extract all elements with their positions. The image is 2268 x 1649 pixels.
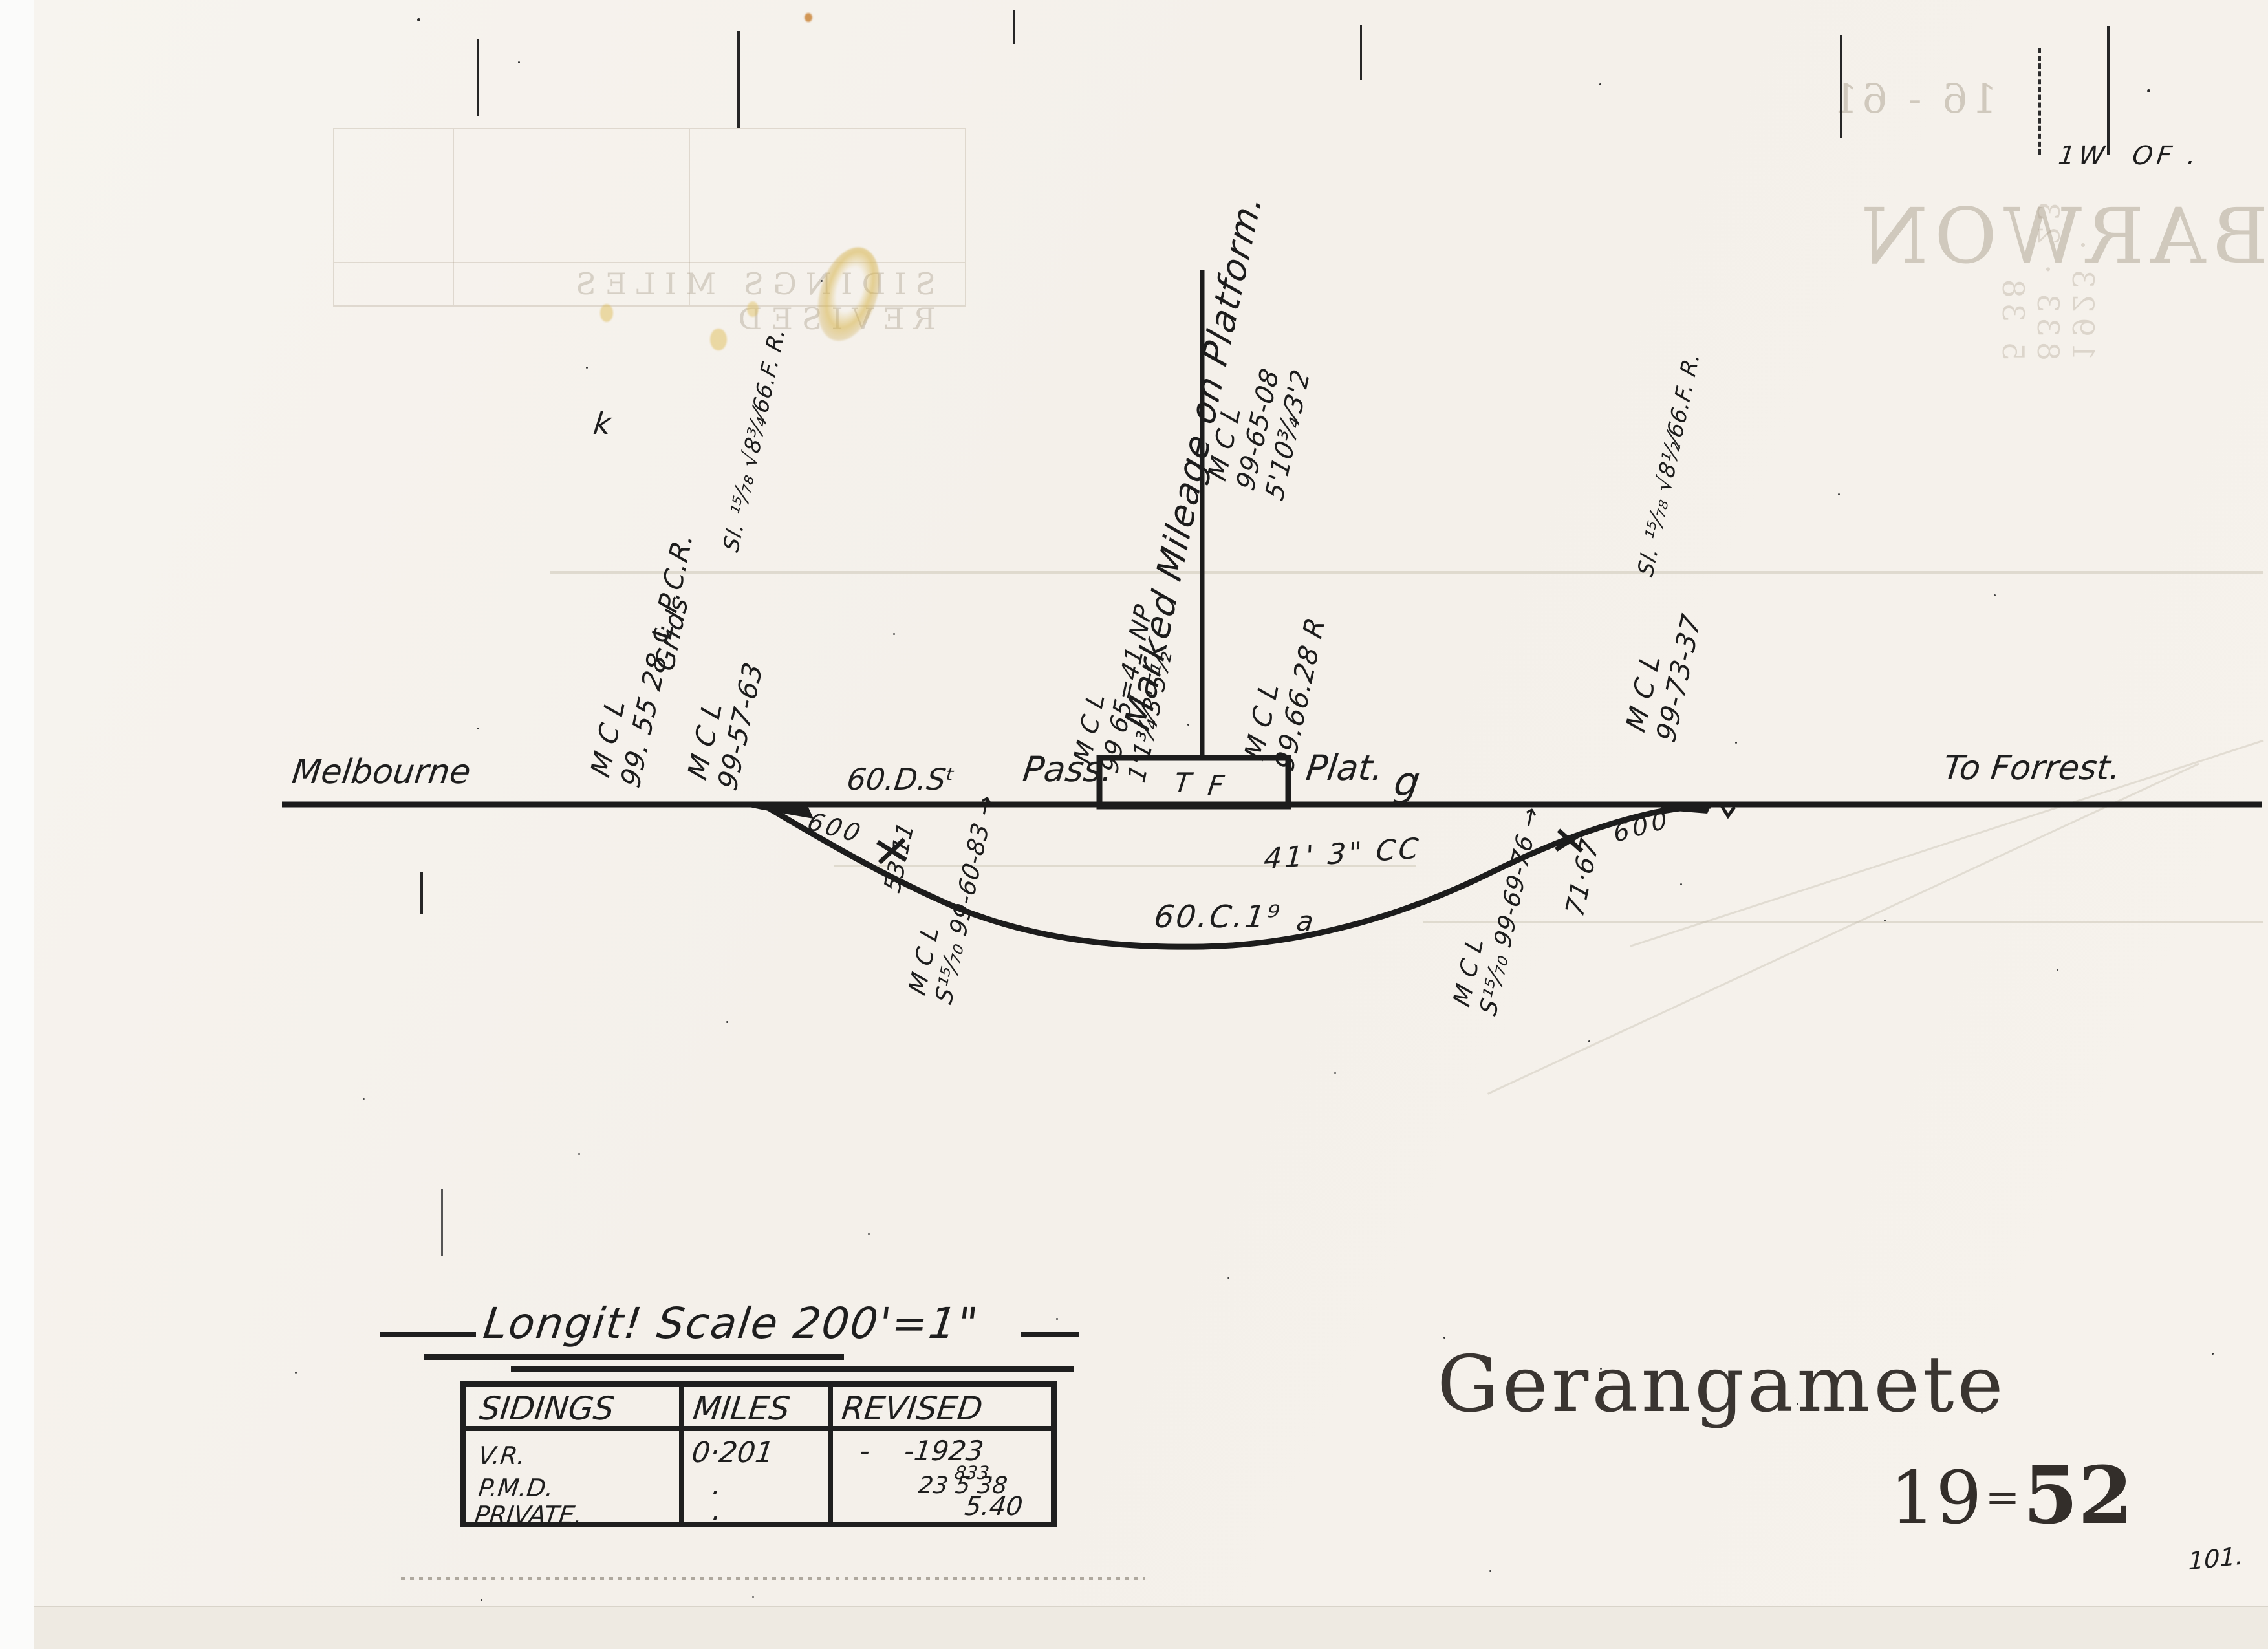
table-header-revised: REVISED (839, 1390, 984, 1427)
scale-title-underline (424, 1354, 844, 1360)
scale-title-underline (511, 1366, 1074, 1372)
top-corner-note: 1W OF . (2057, 141, 2201, 171)
points-wedge-left (724, 802, 814, 819)
main-rail-weight-label: 60.D.Sᵗ (845, 762, 957, 797)
table-column-divider (828, 1387, 833, 1522)
station-name-title: Gerangamete (1437, 1340, 2006, 1430)
table-header-miles: MILES (691, 1390, 792, 1427)
table-row-revised: 5.40 (963, 1492, 1024, 1522)
destination-left-label: Melbourne (290, 753, 473, 792)
table-row-siding: V.R. (477, 1441, 527, 1470)
table-header-sidings: SIDINGS (477, 1390, 616, 1427)
table-row-miles: 0·201 (690, 1436, 775, 1469)
ink-specks (0, 0, 3, 3)
sheet-number-separator: = (1985, 1474, 2020, 1522)
table-row-siding: P.M.D. (477, 1474, 555, 1502)
scanned-sheet: 16 - 61 BARWON 1923 · 833 · 23 5 38 SIDI… (0, 0, 2268, 1649)
sidings-table: SIDINGS MILES REVISED V.R. 0·201 - -1923… (460, 1381, 1057, 1527)
loop-rail-weight-label: 60.C.1⁹ (1152, 899, 1284, 935)
page-number-note: 101. (2188, 1542, 2243, 1576)
scale-title: Longit! Scale 200'=1" (481, 1299, 981, 1348)
scale-title-dash-right (1021, 1332, 1079, 1337)
sheet-number-prefix: 19 (1890, 1456, 1982, 1540)
sheet-number-suffix: 52 (2023, 1449, 2133, 1542)
table-row-siding: PRIVATE. (473, 1501, 584, 1529)
destination-right-label: To Forrest. (1941, 749, 2123, 788)
platform-plat-label: Plat. (1304, 748, 1386, 788)
table-column-divider (679, 1387, 684, 1522)
scale-title-dash-left (380, 1332, 476, 1337)
sheet-number: 19 = 52 (1890, 1449, 2133, 1542)
